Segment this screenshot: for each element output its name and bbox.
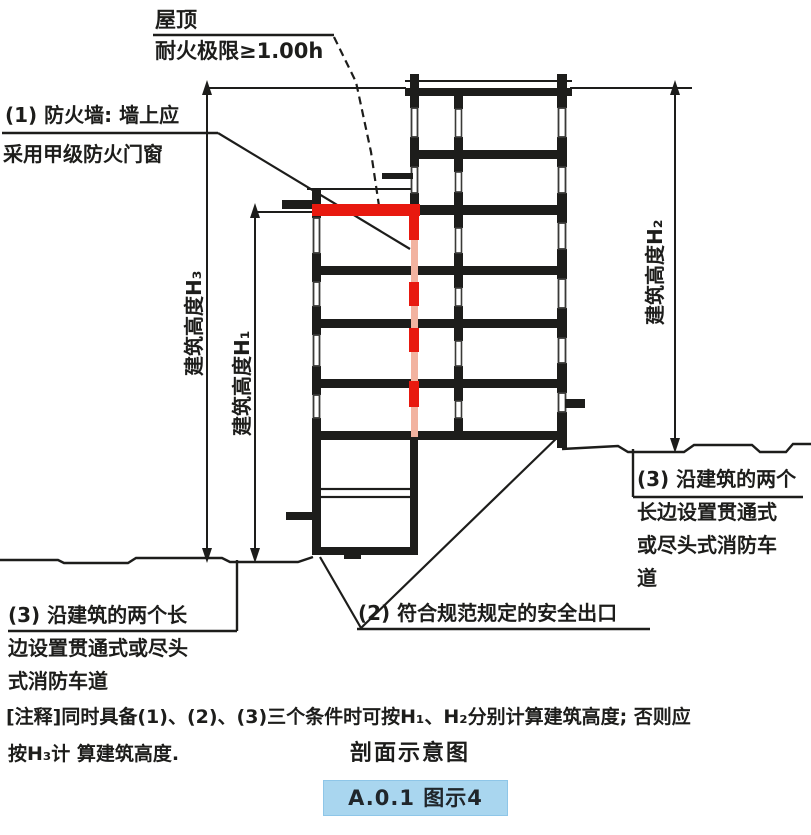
leader-lines — [218, 37, 562, 628]
safety-exit-note: (2) 符合规范规定的安全出口 — [358, 597, 617, 626]
roof-note-line1: 屋顶 — [155, 5, 323, 36]
tall-building-left-wall — [410, 74, 419, 216]
fire-wall-roof-bar — [312, 204, 420, 216]
footnote-line2: 按H₃计 算建筑高度. — [8, 739, 179, 766]
dimension-label-h1: 建筑高度H₁ — [230, 331, 254, 437]
firewall-note-line2: 采用甲级防火门窗 — [3, 138, 163, 167]
figure-canvas: 屋顶 耐火极限≥1.00h (1) 防火墙: 墙上应 采用甲级防火门窗 建筑高度… — [0, 0, 811, 835]
figure-number-badge: A.0.1 图示4 — [323, 780, 508, 816]
stub-right-wall — [565, 399, 585, 408]
dimension-label-h2: 建筑高度H₂ — [643, 220, 667, 326]
canopy-left-lower — [286, 512, 313, 520]
ground-line-right — [562, 444, 811, 452]
ground-line-left — [0, 557, 313, 563]
basement-wall — [410, 437, 418, 555]
fire-lane-note-right: (3) 沿建筑的两个 长边设置贯通式 或尽头式消防车 道 — [637, 463, 796, 595]
dimension-label-h3: 建筑高度H₃ — [182, 271, 206, 377]
low-building-left-wall — [312, 188, 321, 555]
stub-tall-wall — [382, 173, 413, 179]
roof-note: 屋顶 耐火极限≥1.00h — [155, 5, 323, 67]
fire-lane-note-left: (3) 沿建筑的两个长 边设置贯通式或尽头 式消防车道 — [8, 599, 188, 698]
dimension-h1 — [250, 203, 313, 563]
roof-note-line2: 耐火极限≥1.00h — [155, 36, 323, 67]
figure-caption: 剖面示意图 — [350, 735, 470, 767]
footnote-line1: [注释]同时具备(1)、(2)、(3)三个条件时可按H₁、H₂分别计算建筑高度;… — [6, 702, 808, 729]
wall-stubs — [282, 173, 585, 520]
leader-roof — [334, 37, 379, 206]
tall-building-right-wall — [557, 74, 567, 448]
building-floor-slabs — [307, 81, 572, 559]
leader-exit-left — [320, 557, 361, 628]
firewall-note-line1: (1) 防火墙: 墙上应 — [5, 99, 179, 128]
lower-floor-double-line — [317, 489, 412, 497]
canopy-left-upper — [282, 200, 313, 209]
dimension-h2 — [570, 80, 692, 453]
